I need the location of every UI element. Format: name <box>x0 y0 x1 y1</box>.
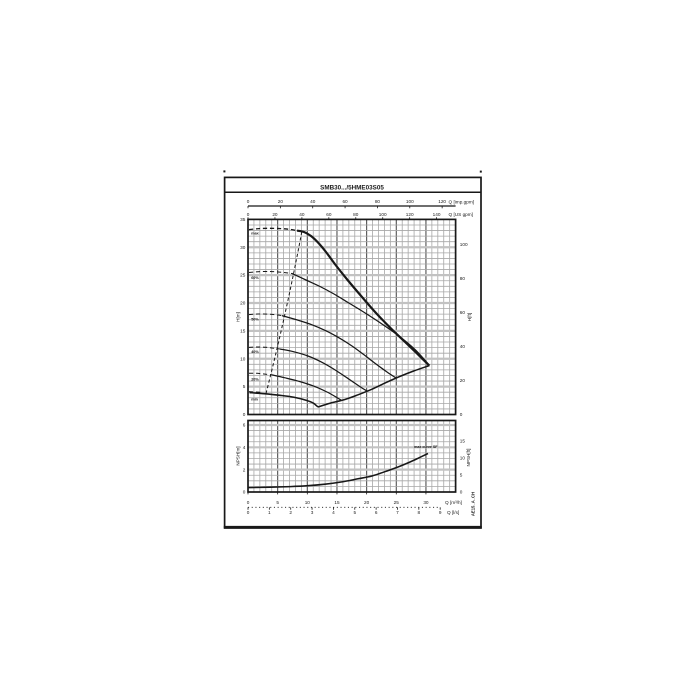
svg-text:40: 40 <box>460 344 466 349</box>
svg-text:80: 80 <box>460 276 466 281</box>
svg-text:0: 0 <box>247 510 250 515</box>
svg-text:Q [m³/h]: Q [m³/h] <box>445 500 462 505</box>
svg-text:7: 7 <box>396 510 399 515</box>
svg-text:0: 0 <box>247 199 250 204</box>
svg-text:80: 80 <box>375 199 381 204</box>
svg-text:4: 4 <box>243 445 246 450</box>
svg-text:60: 60 <box>326 212 332 217</box>
svg-text:5: 5 <box>243 384 246 389</box>
svg-text:60: 60 <box>342 199 348 204</box>
svg-text:Q [imp.gpm]: Q [imp.gpm] <box>449 199 475 204</box>
svg-text:3: 3 <box>311 510 314 515</box>
svg-text:20: 20 <box>272 212 278 217</box>
svg-text:0: 0 <box>243 490 246 495</box>
svg-text:10: 10 <box>305 500 311 505</box>
svg-text:5: 5 <box>353 510 356 515</box>
svg-text:60: 60 <box>460 310 466 315</box>
svg-text:5: 5 <box>276 500 279 505</box>
svg-text:10: 10 <box>460 456 466 461</box>
svg-text:100: 100 <box>460 242 468 247</box>
svg-text:NPSH[ft]: NPSH[ft] <box>466 449 471 467</box>
svg-text:H[ft]: H[ft] <box>467 313 472 321</box>
svg-text:100: 100 <box>406 199 414 204</box>
svg-text:60%: 60% <box>251 276 259 280</box>
svg-text:5: 5 <box>460 473 463 478</box>
svg-text:0: 0 <box>243 412 246 417</box>
svg-text:max curve SF: max curve SF <box>414 445 438 449</box>
svg-text:15: 15 <box>334 500 340 505</box>
svg-text:0: 0 <box>460 412 463 417</box>
svg-text:100: 100 <box>379 212 387 217</box>
svg-text:6: 6 <box>243 423 246 428</box>
svg-text:Q [US gpm]: Q [US gpm] <box>449 212 474 217</box>
svg-text:30: 30 <box>423 500 429 505</box>
svg-text:2: 2 <box>289 510 292 515</box>
svg-text:max: max <box>251 232 259 236</box>
svg-text:80: 80 <box>353 212 359 217</box>
svg-text:40: 40 <box>299 212 305 217</box>
svg-text:1: 1 <box>268 510 271 515</box>
svg-text:25: 25 <box>240 273 246 278</box>
svg-text:15: 15 <box>240 328 246 333</box>
svg-text:10: 10 <box>240 356 246 361</box>
svg-text:20: 20 <box>278 199 284 204</box>
svg-text:0: 0 <box>460 490 463 495</box>
svg-text:8: 8 <box>418 510 421 515</box>
svg-text:2: 2 <box>243 467 246 472</box>
svg-text:15: 15 <box>460 439 466 444</box>
svg-text:120: 120 <box>406 212 414 217</box>
svg-text:120: 120 <box>438 199 446 204</box>
svg-text:50%: 50% <box>251 317 259 321</box>
svg-text:40: 40 <box>310 199 316 204</box>
svg-text:0: 0 <box>247 212 250 217</box>
svg-text:min: min <box>251 397 258 401</box>
svg-text:140: 140 <box>433 212 441 217</box>
svg-text:20: 20 <box>364 500 370 505</box>
svg-text:20: 20 <box>240 301 246 306</box>
svg-text:SMB30.../5HME03S05: SMB30.../5HME03S05 <box>320 185 384 192</box>
svg-text:25: 25 <box>394 500 400 505</box>
svg-text:0: 0 <box>247 500 250 505</box>
svg-text:20%: 20% <box>251 377 259 381</box>
svg-text:35: 35 <box>240 217 246 222</box>
svg-text:6: 6 <box>375 510 378 515</box>
svg-text:20: 20 <box>460 378 466 383</box>
svg-text:40%: 40% <box>251 350 259 354</box>
svg-text:4: 4 <box>332 510 335 515</box>
svg-text:30: 30 <box>240 245 246 250</box>
svg-text:Q [l/s]: Q [l/s] <box>447 510 459 515</box>
svg-text:NPSH[m]: NPSH[m] <box>236 446 241 465</box>
svg-text:9: 9 <box>439 510 442 515</box>
svg-text:H[m]: H[m] <box>236 312 241 322</box>
svg-text:AE15_A_CH: AE15_A_CH <box>471 492 476 516</box>
